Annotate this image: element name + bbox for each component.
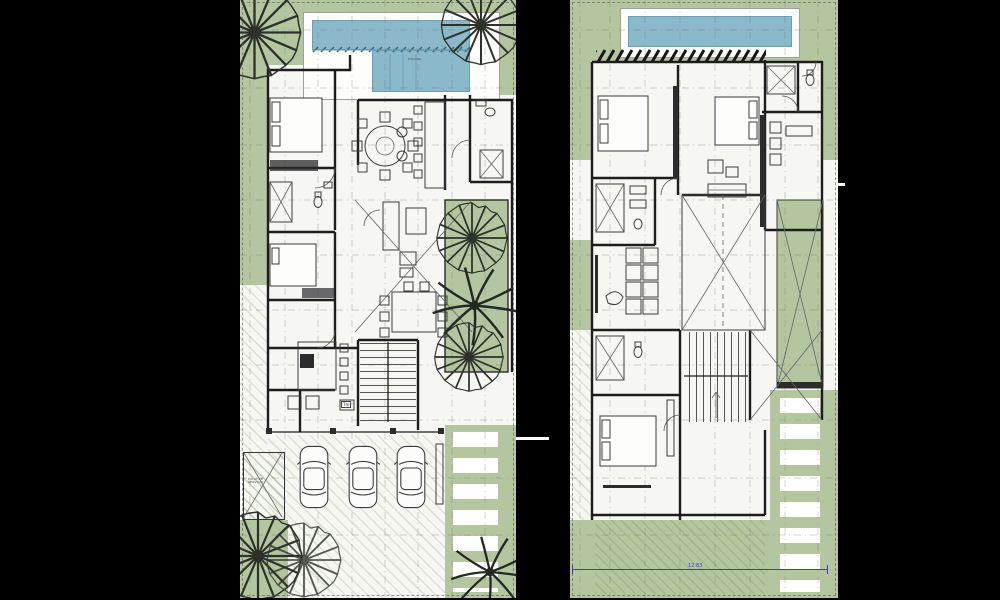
leader-line: [516, 437, 549, 440]
dressing-room: [770, 122, 812, 165]
ground-floor-plan: PISCINA PATIO DE SERVICIO Tm: [240, 0, 516, 598]
void-double-height: [682, 184, 765, 330]
car-2: [346, 446, 380, 507]
bedroom-c: [600, 400, 674, 488]
bed-secondary: [270, 244, 335, 298]
bed-primary: [270, 98, 322, 171]
floor-plan-canvas: PISCINA PATIO DE SERVICIO Tm: [0, 0, 1000, 600]
upper-floor-plan: [570, 0, 838, 598]
tree-bottom-left-2: [267, 523, 341, 597]
dimension-line: [572, 569, 828, 570]
car-1: [297, 446, 331, 507]
courtyard-tree-2: [435, 323, 504, 392]
bathroom-mid-left: [596, 184, 646, 232]
dining-table-rect: [380, 282, 447, 337]
green-roof-cross: [777, 200, 823, 388]
stair-label: Tm: [341, 401, 351, 408]
bedroom-b: [708, 97, 759, 177]
car-3: [394, 446, 428, 507]
bedroom-a: [598, 96, 648, 151]
upper-floor-linework: [570, 0, 838, 598]
dimension-tick-left: [572, 565, 573, 574]
family-room: [595, 248, 658, 314]
bathroom-1: [270, 182, 332, 222]
dimension-tick-right: [827, 565, 828, 574]
tree-top-right: [441, 0, 516, 65]
edge-tick: [836, 183, 845, 186]
palm-bottom-right: [451, 537, 516, 598]
tree-top-left: [240, 0, 301, 79]
service-patio-label: PATIO DE SERVICIO: [248, 478, 280, 484]
bathroom-low-left: [596, 336, 642, 380]
ground-floor-linework: [240, 0, 516, 598]
louver-slats: [596, 47, 766, 62]
pool-label: PISCINA: [408, 58, 438, 61]
staircase: [340, 342, 416, 422]
staircase: [684, 332, 748, 422]
dimension-label: 12.83: [688, 563, 702, 569]
bathroom-top-right: [767, 66, 814, 94]
cross-room-bottom-right: [750, 330, 822, 420]
bathroom-2: [476, 100, 503, 178]
garage-cars: [297, 446, 428, 507]
courtyard-tree-1: [437, 203, 507, 273]
